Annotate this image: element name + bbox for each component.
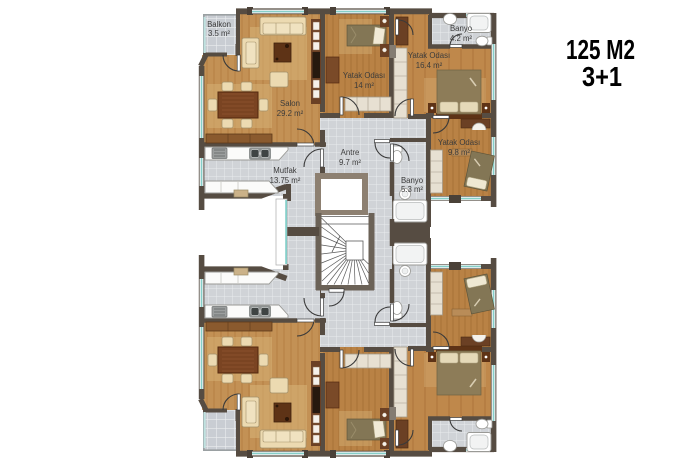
svg-text:29.2 m²: 29.2 m² (277, 109, 304, 118)
svg-text:Yatak Odası: Yatak Odası (343, 71, 385, 80)
svg-text:Banyo: Banyo (450, 24, 473, 33)
svg-text:3.5 m²: 3.5 m² (208, 29, 230, 38)
svg-text:9.8 m²: 9.8 m² (448, 148, 470, 157)
svg-text:16.4 m²: 16.4 m² (416, 61, 443, 70)
svg-text:Mutfak: Mutfak (273, 166, 296, 175)
svg-text:Yatak Odası: Yatak Odası (408, 51, 450, 60)
svg-text:Yatak Odası: Yatak Odası (438, 138, 480, 147)
svg-text:3+1: 3+1 (582, 61, 622, 92)
svg-text:5.3 m²: 5.3 m² (401, 185, 423, 194)
svg-text:Salon: Salon (280, 99, 300, 108)
svg-text:Banyo: Banyo (401, 176, 424, 185)
svg-text:14 m²: 14 m² (354, 81, 374, 90)
svg-text:4.2 m²: 4.2 m² (450, 34, 472, 43)
svg-text:Antre: Antre (341, 148, 360, 157)
svg-text:13.75 m²: 13.75 m² (270, 176, 301, 185)
svg-text:9.7 m²: 9.7 m² (339, 158, 361, 167)
svg-text:Balkon: Balkon (207, 20, 231, 29)
